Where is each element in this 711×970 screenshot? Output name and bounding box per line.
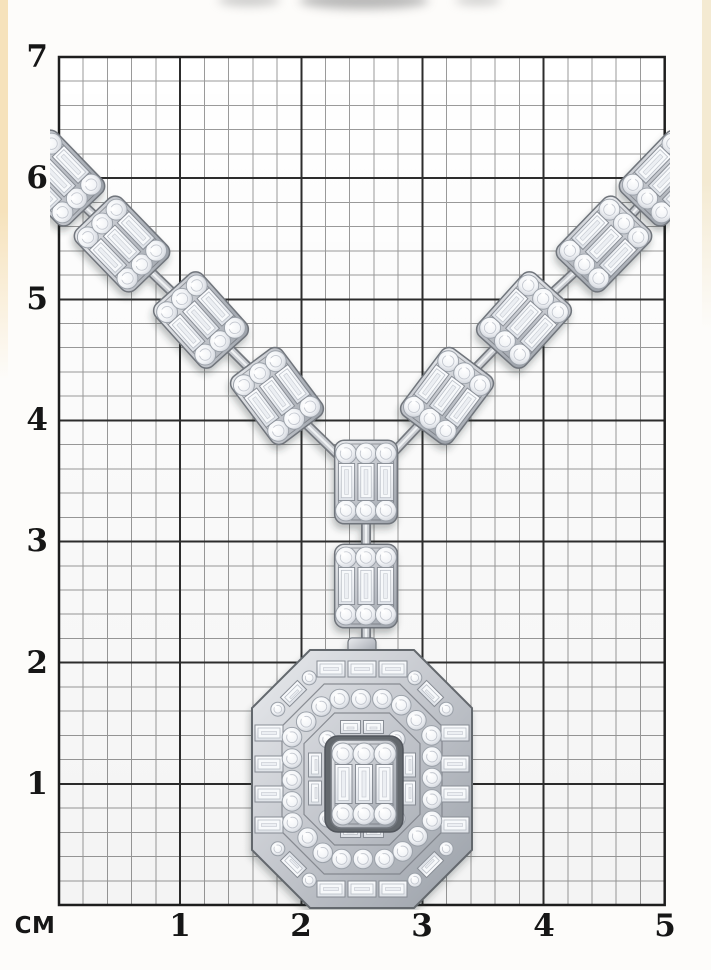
ruler-label-1cm: 1 <box>6 766 48 802</box>
scene-svg <box>0 0 711 970</box>
measurement-photo: 7 6 5 4 3 2 1 CM 1 2 3 4 5 <box>0 0 711 970</box>
pendant <box>252 638 472 908</box>
ruler-label-x5: 5 <box>635 908 695 944</box>
ruler-label-6cm: 6 <box>6 160 48 196</box>
ruler-label-2cm: 2 <box>6 645 48 681</box>
ruler-label-x1: 1 <box>150 908 210 944</box>
ruler-label-x3: 3 <box>392 908 452 944</box>
ruler-label-3cm: 3 <box>6 523 48 559</box>
ruler-unit-label: CM <box>5 908 65 944</box>
ruler-label-4cm: 4 <box>6 402 48 438</box>
ruler-label-5cm: 5 <box>6 281 48 317</box>
diamond-cluster <box>331 740 397 828</box>
ruler-label-x2: 2 <box>271 908 331 944</box>
ruler-label-7cm: 7 <box>6 39 48 75</box>
diamond-cluster <box>335 440 398 524</box>
diamond-cluster <box>335 544 398 628</box>
ruler-label-x4: 4 <box>514 908 574 944</box>
